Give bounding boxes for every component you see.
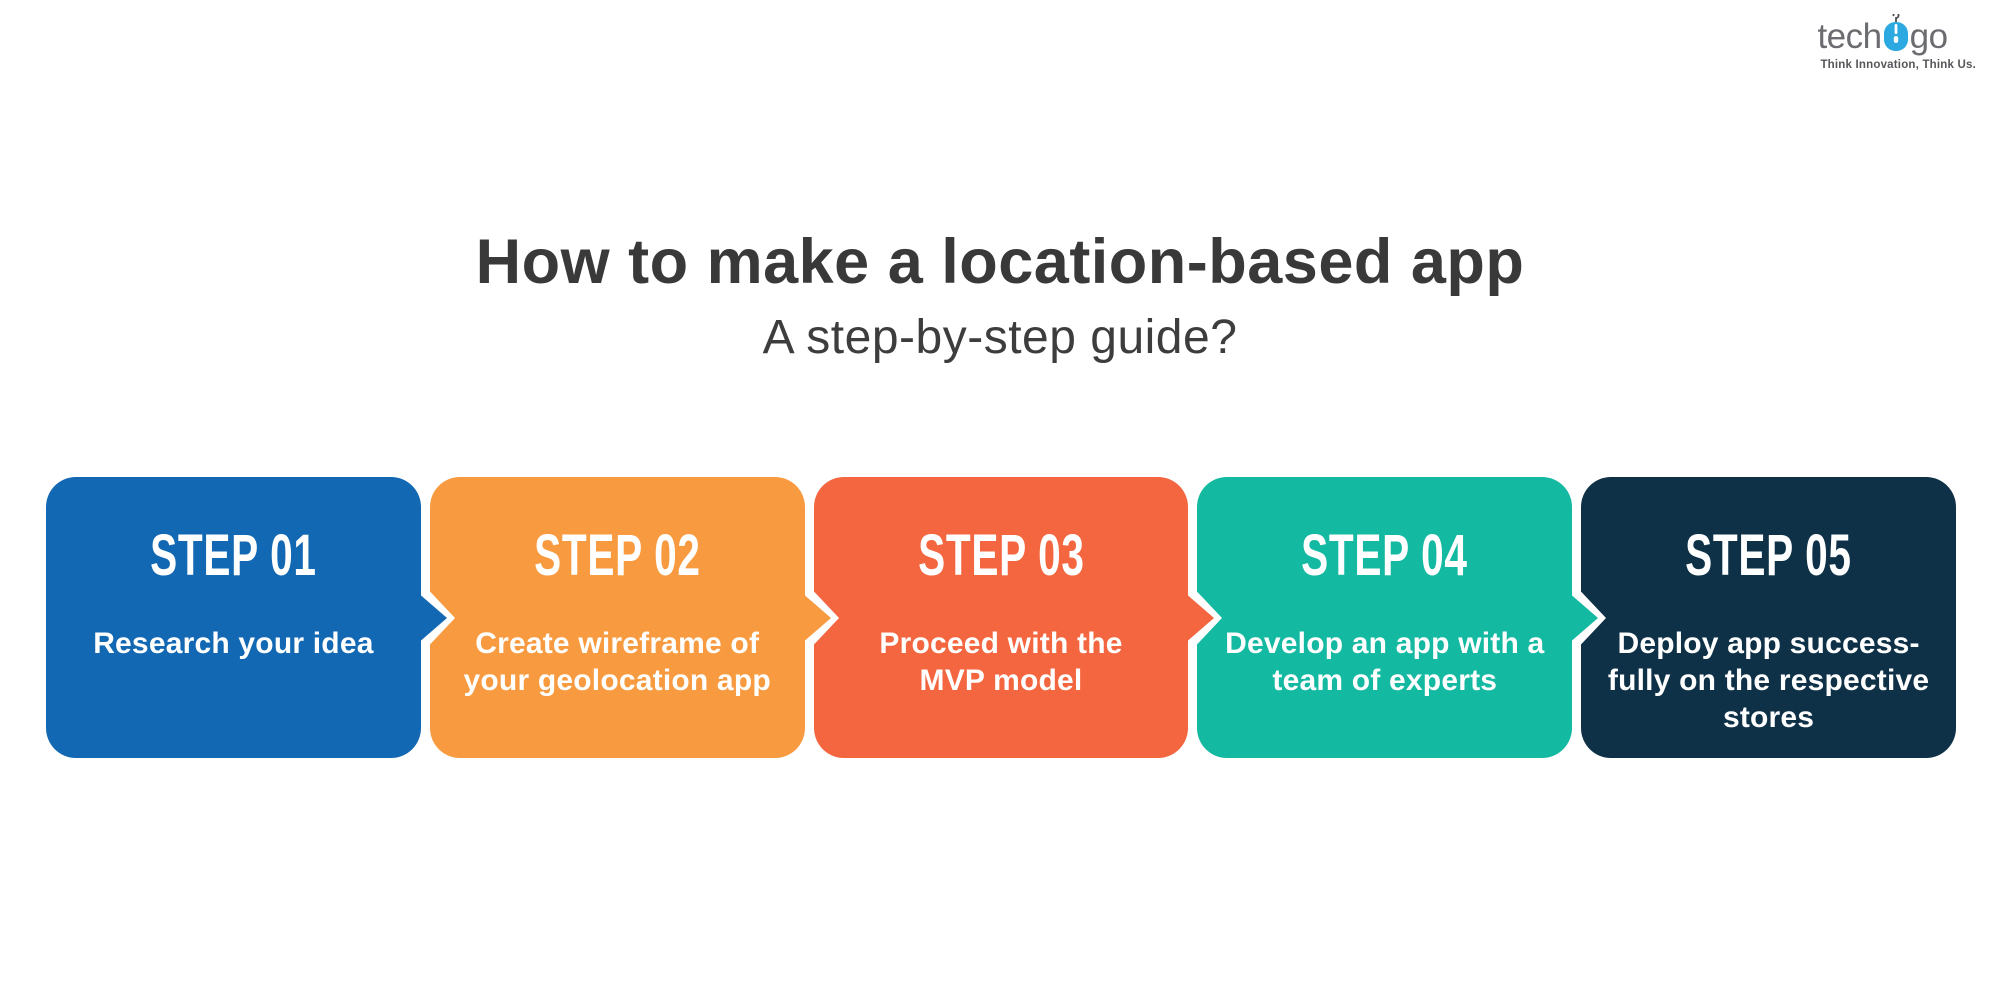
steps-row: STEP 01 Research your idea STEP 02 Creat… bbox=[46, 477, 1956, 758]
mouse-wheel bbox=[1893, 36, 1897, 43]
mouse-slit bbox=[1894, 24, 1897, 34]
step-label: STEP 03 bbox=[870, 527, 1132, 585]
logo-wordmark: tech go bbox=[1817, 14, 1976, 54]
step-card-4: STEP 04 Develop an app with a team of ex… bbox=[1197, 477, 1572, 758]
step-label: STEP 04 bbox=[1254, 527, 1516, 585]
mouse-cable bbox=[1893, 14, 1898, 22]
arrow-right-icon bbox=[1178, 582, 1234, 654]
page-subtitle: A step-by-step guide? bbox=[0, 310, 2000, 365]
logo-tagline: Think Innovation, Think Us. bbox=[1817, 59, 1976, 71]
infographic-canvas: tech go Think Innovation, Think Us. How … bbox=[0, 0, 2000, 1000]
arrow-right-icon bbox=[795, 582, 851, 654]
step-card-5: STEP 05 Deploy app success- fully on the… bbox=[1581, 477, 1956, 758]
step-description: Deploy app success- fully on the respect… bbox=[1595, 625, 1942, 736]
arrow-right-icon bbox=[411, 582, 467, 654]
step-card-1: STEP 01 Research your idea bbox=[46, 477, 421, 758]
mouse-icon bbox=[1883, 14, 1909, 52]
step-description: Create wireframe of your geolocation app bbox=[444, 625, 791, 699]
step-card-3: STEP 03 Proceed with the MVP model bbox=[814, 477, 1189, 758]
step-description: Develop an app with a team of experts bbox=[1211, 625, 1558, 699]
logo-text-tech: tech bbox=[1817, 19, 1881, 54]
step-description: Research your idea bbox=[60, 625, 407, 662]
logo-text-go: go bbox=[1910, 19, 1948, 54]
step-card-2: STEP 02 Create wireframe of your geoloca… bbox=[430, 477, 805, 758]
step-description: Proceed with the MVP model bbox=[828, 625, 1175, 699]
techugo-logo: tech go Think Innovation, Think Us. bbox=[1817, 14, 1976, 71]
step-label: STEP 01 bbox=[102, 527, 364, 585]
step-label: STEP 02 bbox=[486, 527, 748, 585]
step-label: STEP 05 bbox=[1637, 527, 1899, 585]
arrow-right-icon bbox=[1562, 582, 1618, 654]
title-block: How to make a location-based app A step-… bbox=[0, 226, 2000, 365]
page-title: How to make a location-based app bbox=[0, 226, 2000, 298]
